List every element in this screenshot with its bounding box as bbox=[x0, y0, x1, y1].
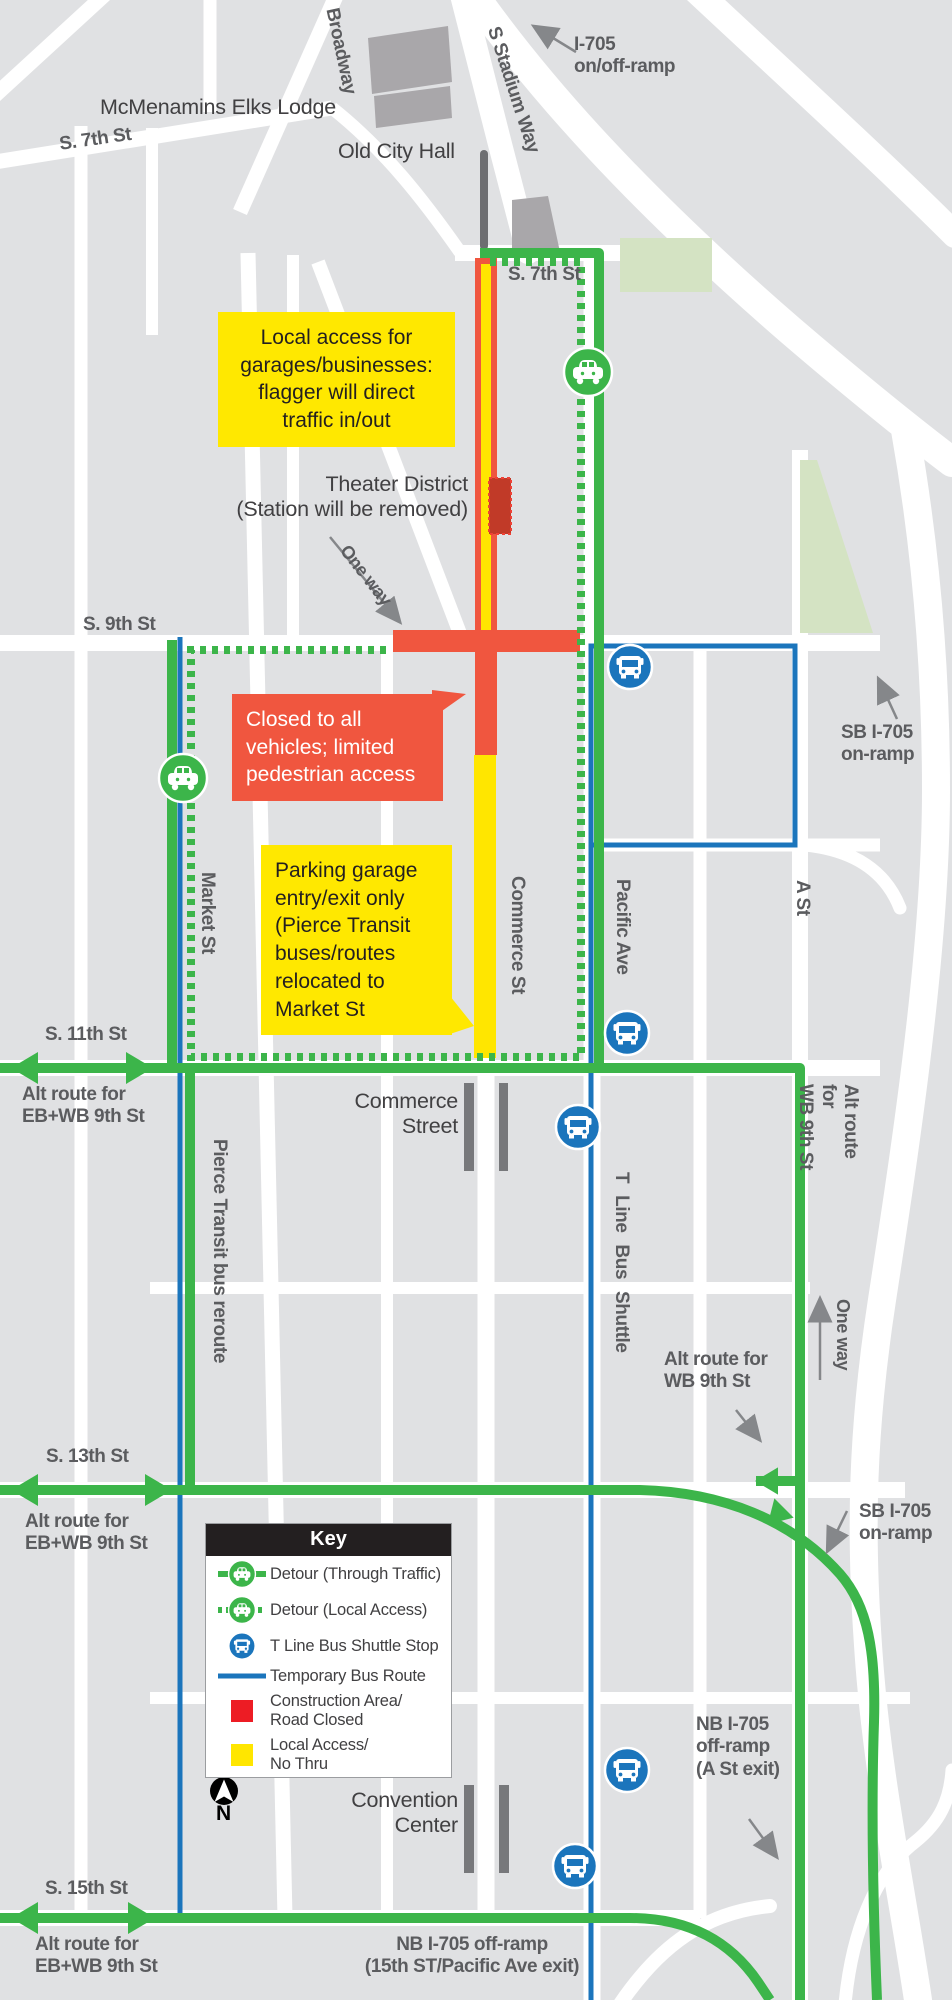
label-nb-i705-offramp-ast: NB I-705 off-ramp (A St exit) bbox=[696, 1714, 780, 1781]
label-alt-route-ebwb-2: Alt route for EB+WB 9th St bbox=[25, 1511, 147, 1556]
label-sb-i705-onramp-north: SB I-705 on-ramp bbox=[841, 722, 914, 767]
detour-car-icon bbox=[159, 754, 207, 802]
label-alt-route-wb-mid: Alt route for WB 9th St bbox=[664, 1349, 768, 1394]
key-row: Construction Area/ Road Closed bbox=[206, 1689, 451, 1733]
label-market-st: Market St bbox=[196, 872, 218, 954]
key-item-label: Detour (Local Access) bbox=[270, 1601, 427, 1620]
label-sb-i705-onramp-south: SB I-705 on-ramp bbox=[859, 1501, 932, 1546]
construction-icon bbox=[214, 1693, 270, 1729]
detour-local-icon bbox=[214, 1595, 270, 1625]
key-item-label: Temporary Bus Route bbox=[270, 1667, 426, 1686]
detour-map: McMenamins Elks Lodge S. 7th St Broadway… bbox=[0, 0, 952, 2000]
north-arrow-icon bbox=[210, 1777, 238, 1805]
label-s7th-east: S. 7th St bbox=[508, 264, 580, 286]
label-t-line-bus-shuttle: T Line Bus Shuttle bbox=[610, 1172, 632, 1353]
label-s13th: S. 13th St bbox=[46, 1446, 129, 1468]
label-one-way-a-st: One way bbox=[832, 1299, 853, 1370]
parking-callout-pointer bbox=[450, 996, 474, 1034]
local-access-callout: Local access for garages/businesses: fla… bbox=[218, 312, 455, 447]
theater-station-marker bbox=[489, 478, 511, 534]
key-row: Local Access/ No Thru bbox=[206, 1733, 451, 1777]
closed-callout: Closed to all vehicles; limited pedestri… bbox=[232, 694, 443, 801]
key-row: Detour (Local Access) bbox=[206, 1592, 451, 1628]
label-alt-route-wb-right: Alt route for WB 9th St bbox=[794, 1084, 861, 1175]
label-s11th: S. 11th St bbox=[45, 1024, 127, 1046]
key-item-label: Construction Area/ Road Closed bbox=[270, 1692, 402, 1730]
detour-through-icon bbox=[214, 1559, 270, 1589]
map-key: Key Detour (Through Traffic) Detour (Loc… bbox=[205, 1523, 452, 1778]
label-commerce-street-station: Commerce Street bbox=[330, 1089, 458, 1140]
compass-n-label: N bbox=[216, 1802, 231, 1826]
key-row: Detour (Through Traffic) bbox=[206, 1556, 451, 1592]
label-a-st: A St bbox=[791, 880, 813, 916]
label-theater-district: Theater District (Station will be remove… bbox=[178, 472, 468, 523]
temp-bus-route-icon bbox=[214, 1669, 270, 1683]
label-pierce-transit-reroute: Pierce Transit bus reroute bbox=[208, 1139, 230, 1363]
key-item-label: Detour (Through Traffic) bbox=[270, 1565, 441, 1584]
label-commerce-st: Commerce St bbox=[506, 876, 528, 994]
bus-stop-icon bbox=[605, 1748, 649, 1792]
bus-stop-icon bbox=[556, 1105, 600, 1149]
map-canvas bbox=[0, 0, 952, 2000]
old-city-hall-marker bbox=[480, 150, 488, 250]
label-s15th: S. 15th St bbox=[45, 1878, 128, 1900]
label-nb-i705-offramp-15th: NB I-705 off-ramp (15th ST/Pacific Ave e… bbox=[352, 1934, 592, 1979]
label-pacific-ave: Pacific Ave bbox=[611, 879, 633, 975]
key-row: Temporary Bus Route bbox=[206, 1664, 451, 1689]
key-title: Key bbox=[206, 1524, 451, 1556]
bus-stop-icon bbox=[214, 1631, 270, 1661]
label-mcmenamins: McMenamins Elks Lodge bbox=[100, 95, 336, 120]
label-s9th: S. 9th St bbox=[83, 614, 155, 636]
label-convention-center: Convention Center bbox=[330, 1788, 458, 1839]
label-old-city-hall: Old City Hall bbox=[338, 139, 455, 164]
label-i705-ramp: I-705 on/off-ramp bbox=[574, 34, 675, 79]
parking-callout: Parking garage entry/exit only (Pierce T… bbox=[261, 845, 452, 1035]
key-item-label: T Line Bus Shuttle Stop bbox=[270, 1637, 438, 1656]
detour-car-icon bbox=[564, 348, 612, 396]
bus-stop-icon bbox=[553, 1844, 597, 1888]
bus-stop-icon bbox=[605, 1011, 649, 1055]
key-row: T Line Bus Shuttle Stop bbox=[206, 1628, 451, 1664]
key-item-label: Local Access/ No Thru bbox=[270, 1736, 368, 1774]
local-access-icon bbox=[214, 1737, 270, 1773]
label-alt-route-ebwb-3: Alt route for EB+WB 9th St bbox=[35, 1934, 157, 1979]
label-alt-route-ebwb-1: Alt route for EB+WB 9th St bbox=[22, 1084, 144, 1129]
bus-stop-icon bbox=[608, 645, 652, 689]
